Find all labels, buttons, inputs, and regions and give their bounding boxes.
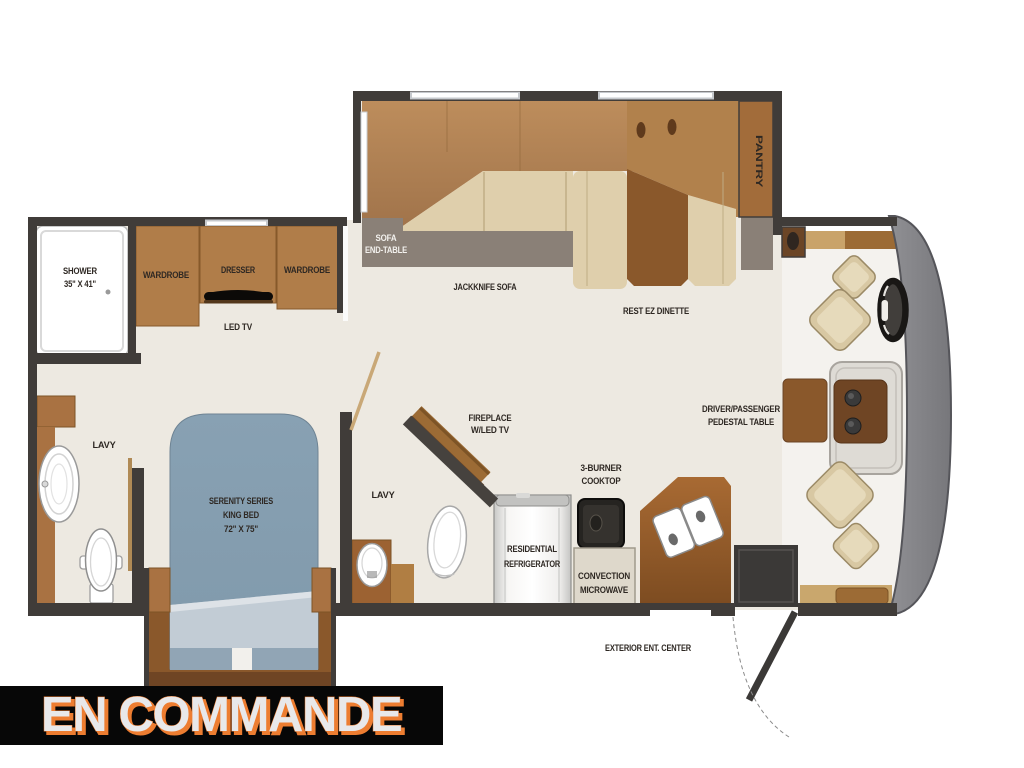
svg-text:WARDROBE: WARDROBE xyxy=(284,265,330,276)
svg-text:RESIDENTIAL: RESIDENTIAL xyxy=(507,544,557,555)
svg-text:72" X 75": 72" X 75" xyxy=(224,524,258,535)
svg-text:PEDESTAL TABLE: PEDESTAL TABLE xyxy=(708,417,774,428)
svg-text:35" X 41": 35" X 41" xyxy=(64,279,96,290)
svg-text:REFRIGERATOR: REFRIGERATOR xyxy=(504,559,560,570)
svg-text:SHOWER: SHOWER xyxy=(63,266,97,277)
svg-text:MICROWAVE: MICROWAVE xyxy=(580,585,628,596)
svg-text:KING BED: KING BED xyxy=(223,510,259,521)
svg-text:EXTERIOR ENT. CENTER: EXTERIOR ENT. CENTER xyxy=(605,643,691,654)
svg-text:EN COMMANDE: EN COMMANDE xyxy=(41,688,401,742)
svg-text:LAVY: LAVY xyxy=(93,440,117,451)
svg-text:3-BURNER: 3-BURNER xyxy=(581,463,622,474)
svg-text:LAVY: LAVY xyxy=(372,490,396,501)
svg-text:JACKKNIFE SOFA: JACKKNIFE SOFA xyxy=(454,282,517,293)
svg-text:SERENITY SERIES: SERENITY SERIES xyxy=(209,496,273,507)
svg-text:SOFA: SOFA xyxy=(376,233,397,244)
svg-text:W/LED TV: W/LED TV xyxy=(471,425,510,436)
svg-text:LED TV: LED TV xyxy=(224,322,253,333)
svg-text:END-TABLE: END-TABLE xyxy=(365,245,407,256)
svg-text:CONVECTION: CONVECTION xyxy=(578,571,630,582)
svg-text:FIREPLACE: FIREPLACE xyxy=(469,413,512,424)
svg-text:DRIVER/PASSENGER: DRIVER/PASSENGER xyxy=(702,404,780,415)
svg-text:WARDROBE: WARDROBE xyxy=(143,270,189,281)
svg-text:COOKTOP: COOKTOP xyxy=(582,476,622,487)
svg-text:REST EZ DINETTE: REST EZ DINETTE xyxy=(623,306,689,317)
svg-text:DRESSER: DRESSER xyxy=(221,265,255,276)
svg-text:PANTRY: PANTRY xyxy=(753,135,764,188)
